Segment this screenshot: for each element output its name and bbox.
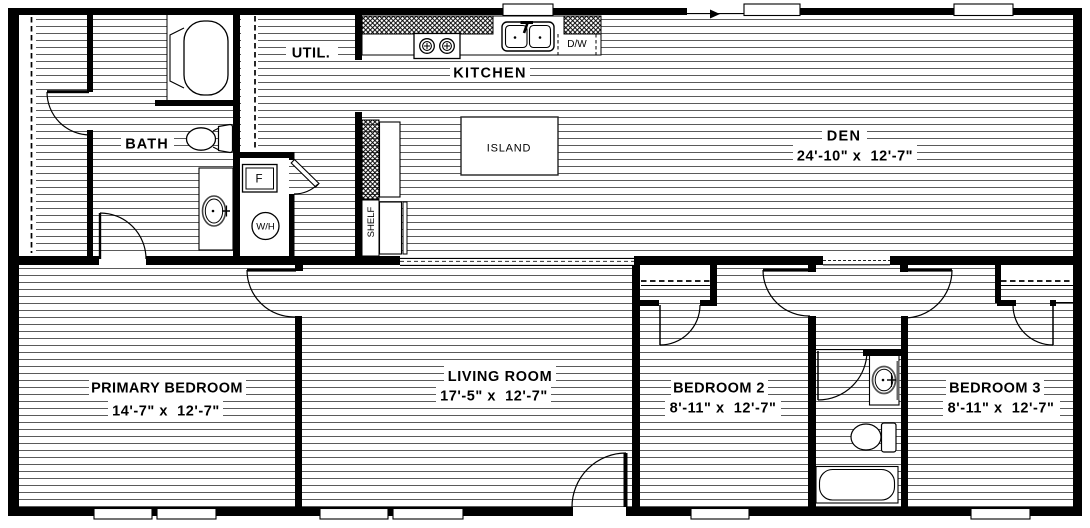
- svg-text:24'-10" x 12'-7": 24'-10" x 12'-7": [797, 149, 913, 165]
- svg-text:W/H: W/H: [256, 222, 275, 233]
- svg-text:LIVING ROOM: LIVING ROOM: [448, 369, 553, 385]
- svg-text:DEN: DEN: [827, 128, 862, 144]
- svg-text:UTIL.: UTIL.: [292, 46, 331, 62]
- svg-text:SHELF: SHELF: [366, 206, 377, 237]
- svg-text:D/W: D/W: [567, 39, 587, 50]
- svg-text:17'-5" x 12'-7": 17'-5" x 12'-7": [440, 389, 548, 405]
- svg-text:BEDROOM 3: BEDROOM 3: [949, 381, 1041, 397]
- svg-text:BEDROOM 2: BEDROOM 2: [673, 381, 765, 397]
- svg-text:PRIMARY BEDROOM: PRIMARY BEDROOM: [91, 380, 243, 396]
- svg-text:8'-11" x 12'-7": 8'-11" x 12'-7": [948, 401, 1055, 417]
- svg-text:BATH: BATH: [125, 136, 169, 152]
- svg-text:14'-7" x 12'-7": 14'-7" x 12'-7": [112, 404, 220, 420]
- svg-text:F: F: [255, 174, 262, 186]
- svg-text:KITCHEN: KITCHEN: [453, 66, 527, 82]
- svg-text:ISLAND: ISLAND: [487, 143, 532, 155]
- svg-text:8'-11" x 12'-7": 8'-11" x 12'-7": [670, 401, 777, 417]
